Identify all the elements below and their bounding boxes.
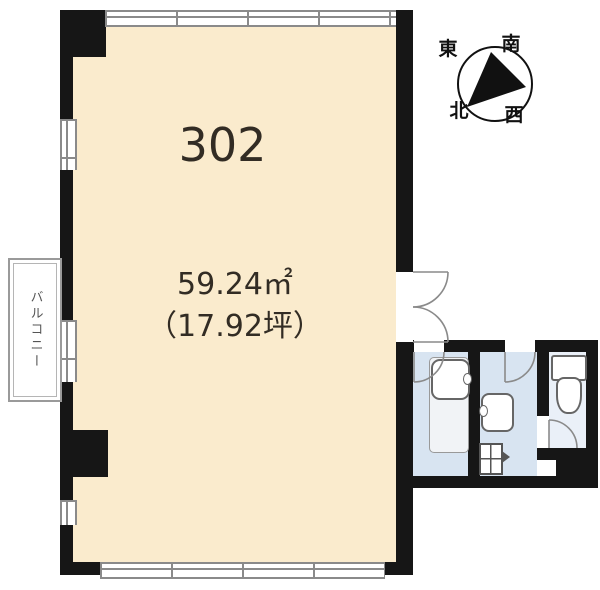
wall-left-4 xyxy=(60,477,73,575)
faucet-icon xyxy=(463,373,472,385)
compass-south-label: 南 xyxy=(499,32,523,56)
balcony-label: バルコニー xyxy=(26,290,45,370)
room-area: 59.24㎡ （17.92坪） xyxy=(85,264,385,348)
middle-door-opening xyxy=(505,340,535,352)
compass-west-label: 西 xyxy=(502,103,526,127)
wall-right-top xyxy=(396,10,413,272)
toilet-door-panel xyxy=(537,416,549,448)
wall-right-bottom xyxy=(396,342,413,575)
washbasin-icon xyxy=(431,359,470,400)
small-sink-unit-icon xyxy=(479,443,503,475)
entrance-door-opening xyxy=(396,272,413,342)
window-left-upper xyxy=(60,119,77,170)
entrance-door-arc-bottom xyxy=(413,307,448,342)
window-bottom xyxy=(100,562,385,579)
room-area-tsubo: （17.92坪） xyxy=(85,306,385,348)
window-left-lower xyxy=(60,500,77,525)
washbasin-2-icon xyxy=(481,393,514,432)
wall-left-1 xyxy=(60,57,73,119)
wall-bath-bottom xyxy=(413,476,568,488)
floorplan-302: バルコニー 302 59.24㎡ （17.92坪） 東 南 北 西 xyxy=(0,0,600,590)
entrance-door-arc-top xyxy=(413,272,448,307)
balcony: バルコニー xyxy=(8,258,62,402)
compass-north-label: 北 xyxy=(447,99,471,123)
toilet-bowl-icon xyxy=(556,377,582,414)
faucet-2-icon xyxy=(479,405,488,417)
balcony-sliding-door xyxy=(60,320,77,382)
wall-bath-right xyxy=(586,340,598,460)
wall-pillar-top-left xyxy=(60,10,106,57)
washroom-door-opening xyxy=(414,340,444,352)
compass-east-label: 東 xyxy=(436,37,460,61)
room-area-m2: 59.24㎡ xyxy=(85,264,385,306)
wall-pillar-bottom-left xyxy=(60,430,108,477)
unit-spout-icon xyxy=(502,451,510,463)
room-number: 302 xyxy=(115,118,330,172)
wall-bath-corner-block xyxy=(556,448,598,488)
window-top xyxy=(105,10,396,27)
wall-bottom-left xyxy=(60,562,105,575)
